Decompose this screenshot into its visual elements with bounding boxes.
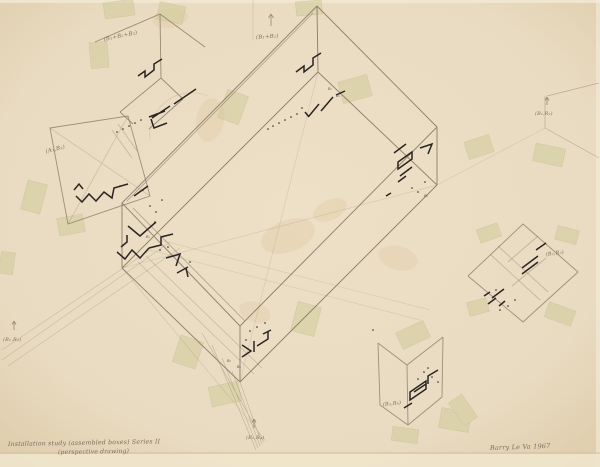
- paper-right-edge: [596, 0, 600, 467]
- label-left-edge: (B₁,R₂): [3, 336, 21, 343]
- label-right-edge: (B₂,R₂): [535, 110, 553, 117]
- tiny-mark-r1: R₁: [145, 235, 150, 239]
- tiny-mark-b2: B₂: [335, 94, 340, 98]
- tiny-mark-b3: B₃: [226, 359, 231, 363]
- tiny-mark-b1: B₁: [327, 87, 332, 91]
- paper-bottom-edge: [0, 454, 600, 467]
- caption-line-2: (perspective drawing): [58, 448, 130, 456]
- tiny-mark-b4: B₄: [236, 365, 241, 369]
- artwork-photo: B₁ B₂ R₂ R₁ B₃ B₄: [0, 0, 600, 467]
- tiny-mark-r2: R₂: [423, 194, 429, 198]
- drawing-canvas: B₁ B₂ R₂ R₁ B₃ B₄: [0, 0, 600, 467]
- label-bottom-center: (B₁,R₄): [246, 434, 264, 441]
